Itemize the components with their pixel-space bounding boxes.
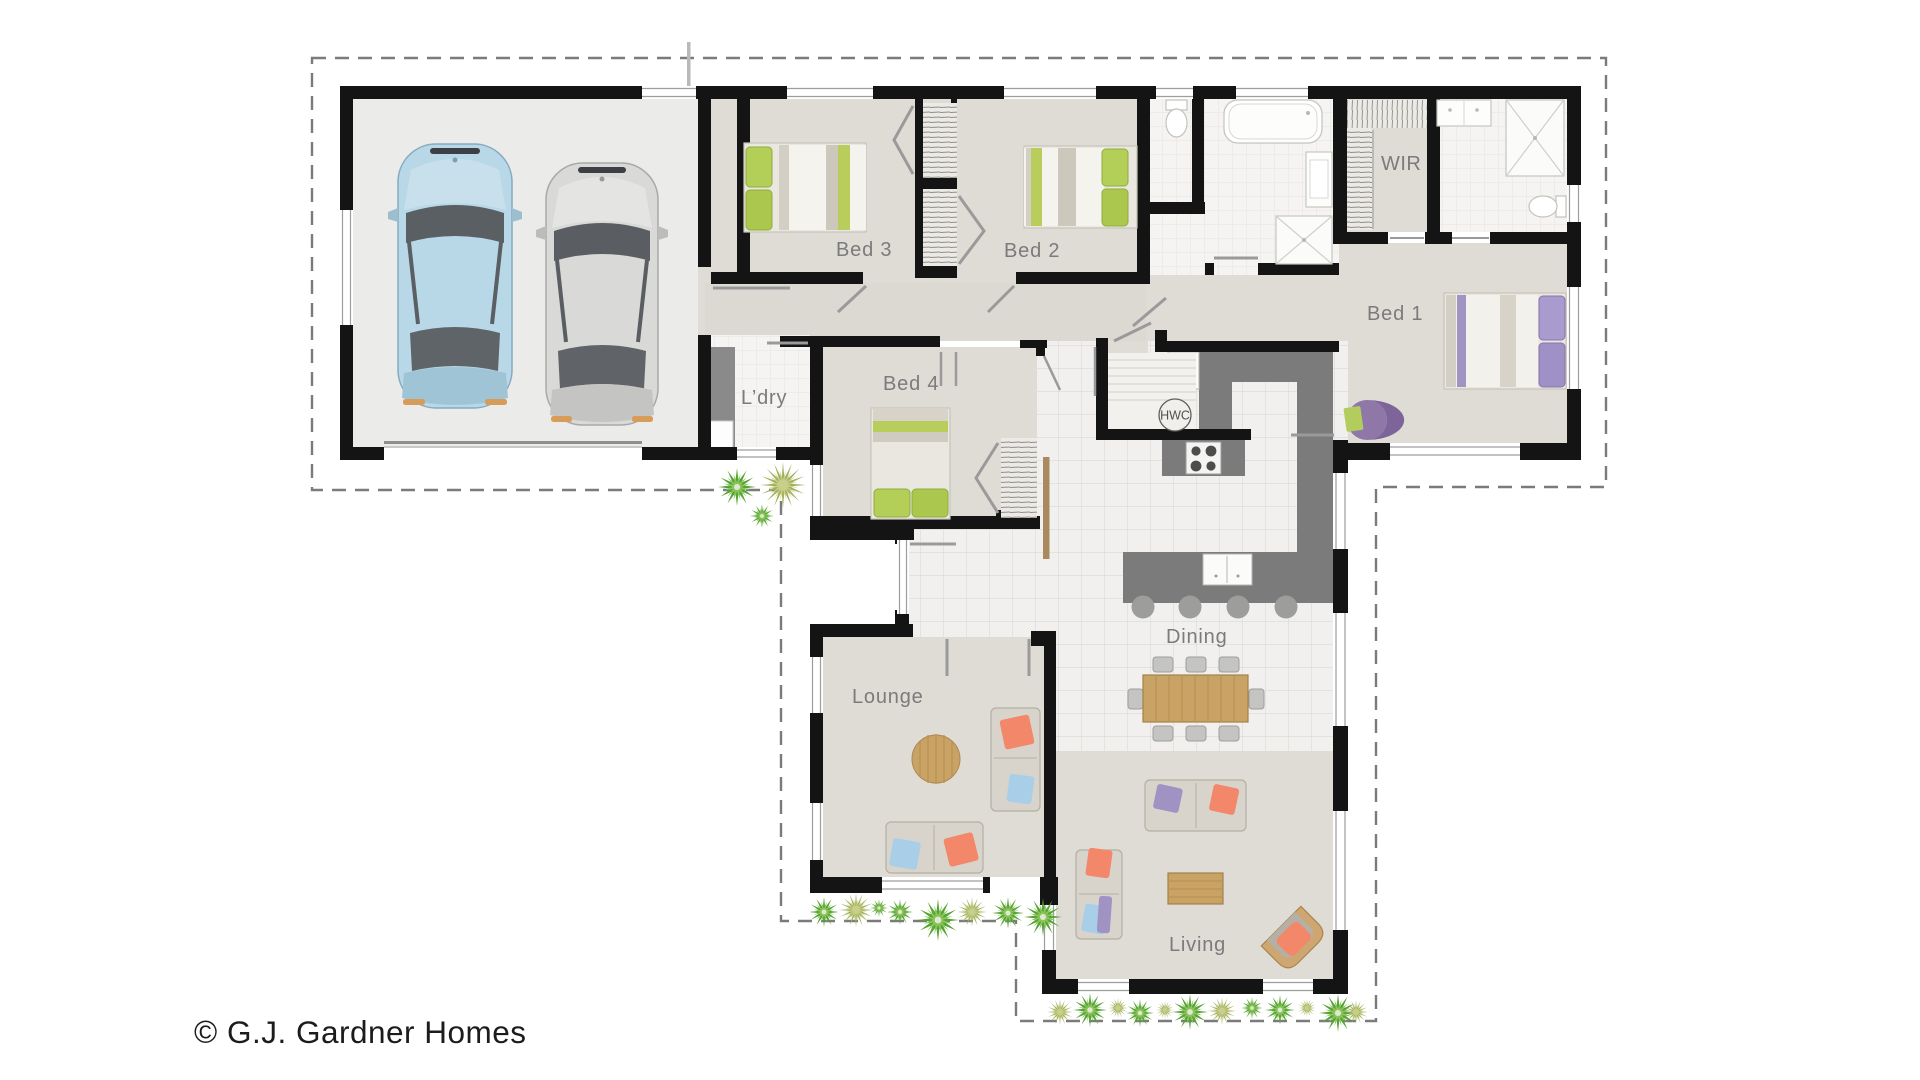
svg-text:Bed 1: Bed 1 — [1367, 303, 1423, 325]
svg-text:HWC: HWC — [1160, 409, 1190, 423]
svg-text:Lounge: Lounge — [852, 686, 924, 708]
svg-text:Living: Living — [1169, 934, 1226, 956]
svg-text:Bed 4: Bed 4 — [883, 373, 939, 395]
svg-text:Bed 3: Bed 3 — [836, 239, 892, 261]
svg-text:L’dry: L’dry — [741, 387, 787, 409]
svg-text:© G.J. Gardner Homes: © G.J. Gardner Homes — [194, 1014, 527, 1050]
svg-text:Dining: Dining — [1166, 626, 1228, 648]
svg-text:WIR: WIR — [1381, 153, 1421, 175]
svg-text:Bed 2: Bed 2 — [1004, 240, 1060, 262]
